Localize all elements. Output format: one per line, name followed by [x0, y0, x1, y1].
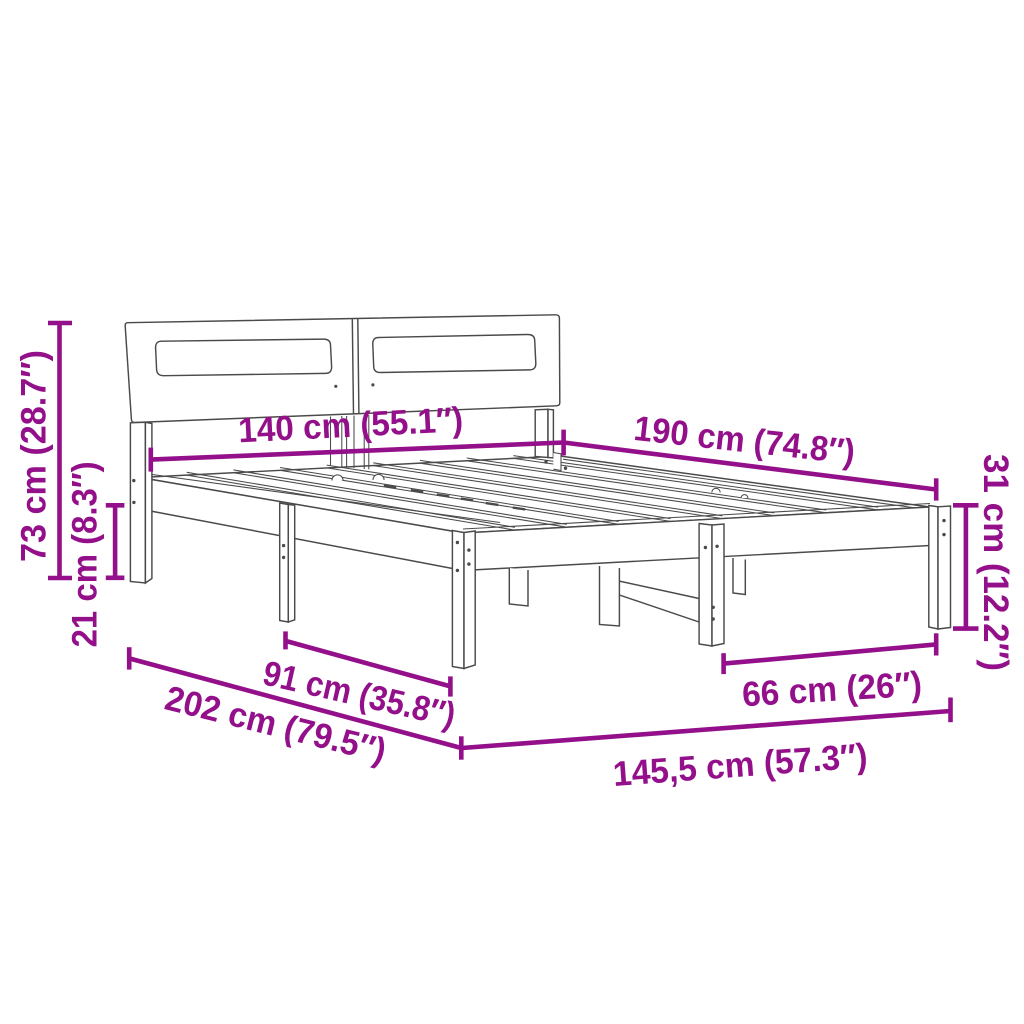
svg-text:31 cm (12.2″): 31 cm (12.2″) — [976, 454, 1015, 671]
svg-text:21 cm (8.3″): 21 cm (8.3″) — [66, 461, 105, 647]
svg-text:73 cm (28.7″): 73 cm (28.7″) — [14, 350, 53, 562]
